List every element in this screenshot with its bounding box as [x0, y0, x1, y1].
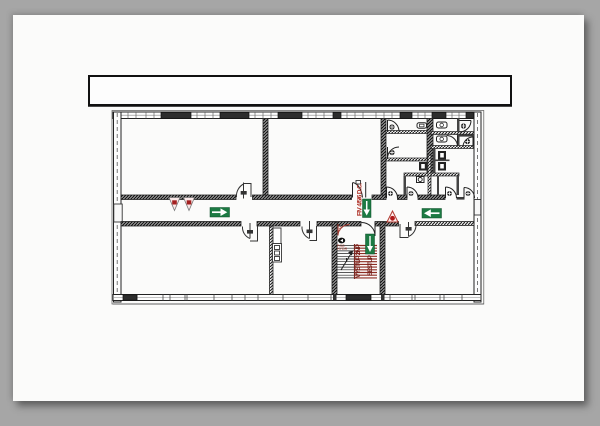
- svg-text:VÝSTUP 2NP: VÝSTUP 2NP: [353, 244, 362, 278]
- svg-text:SESTUP: SESTUP: [367, 255, 374, 276]
- svg-text:HYDR: HYDR: [337, 247, 348, 251]
